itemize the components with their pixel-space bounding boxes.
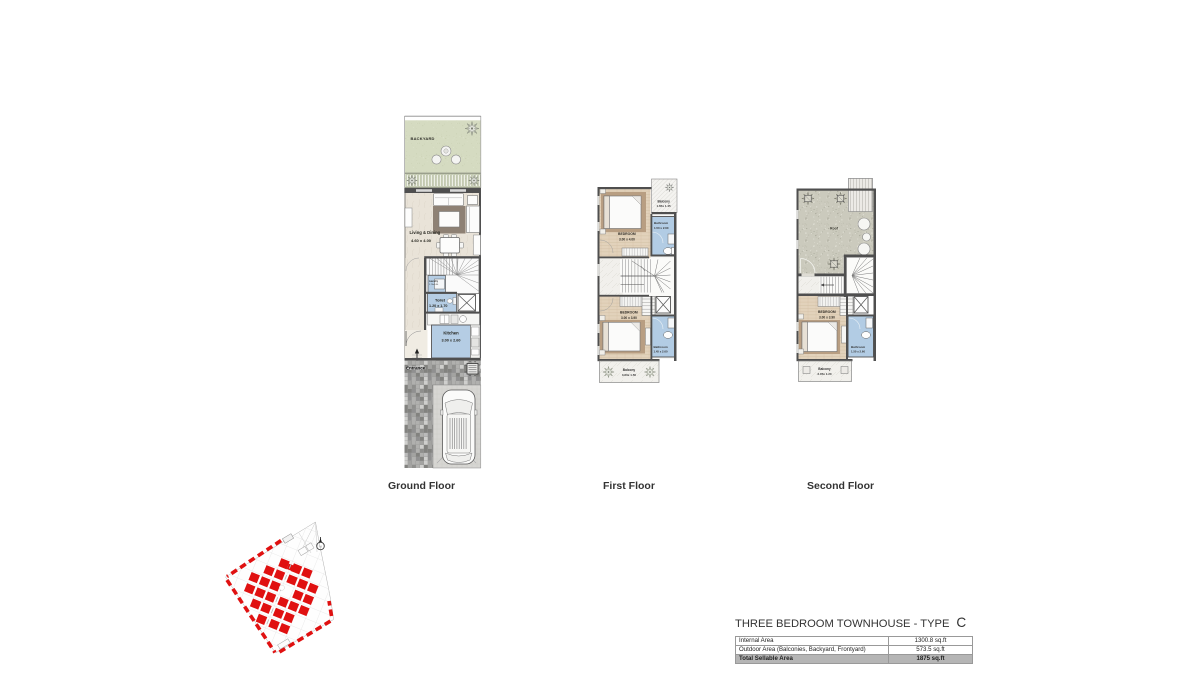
svg-text:3.05x 1.20: 3.05x 1.20 xyxy=(817,372,832,376)
svg-text:BEDROOM: BEDROOM xyxy=(618,232,636,236)
svg-text:BEDROOM: BEDROOM xyxy=(818,310,836,314)
svg-text:1.70x0.90: 1.70x0.90 xyxy=(429,284,439,286)
svg-text:Kitchen: Kitchen xyxy=(443,331,459,336)
svg-text:3.00 x 2.60: 3.00 x 2.60 xyxy=(441,339,460,343)
svg-text:Bathroom: Bathroom xyxy=(851,345,865,349)
svg-text:1.45 x 2.60: 1.45 x 2.60 xyxy=(654,350,668,354)
svg-text:1.50 x 2.60: 1.50 x 2.60 xyxy=(654,226,669,230)
svg-text:1.50 x 2.60: 1.50 x 2.60 xyxy=(851,350,865,354)
svg-text:Laundry: Laundry xyxy=(429,281,439,283)
svg-text:Balcony: Balcony xyxy=(623,368,636,372)
svg-text:Balcony: Balcony xyxy=(658,200,671,204)
svg-text:Toilet: Toilet xyxy=(435,298,446,303)
svg-text:4.60 x 4.00: 4.60 x 4.00 xyxy=(411,238,432,243)
svg-text:3.00 x 3.90: 3.00 x 3.90 xyxy=(621,316,637,320)
svg-text:Roof: Roof xyxy=(830,227,839,231)
svg-text:Living & Dining: Living & Dining xyxy=(410,230,441,235)
svg-text:BEDROOM: BEDROOM xyxy=(620,311,638,315)
svg-text:BACKYARD: BACKYARD xyxy=(411,136,435,141)
svg-text:Balcony: Balcony xyxy=(818,367,831,371)
svg-text:3.00 x 3.90: 3.00 x 3.90 xyxy=(819,316,835,320)
svg-text:Entrance: Entrance xyxy=(406,366,426,371)
svg-text:N: N xyxy=(319,544,321,548)
svg-text:Bathroom: Bathroom xyxy=(654,221,668,225)
svg-text:1.65x 1.45: 1.65x 1.45 xyxy=(657,204,672,208)
svg-text:3.00 x 4.00: 3.00 x 4.00 xyxy=(619,238,635,242)
svg-text:1.20 x 1.70: 1.20 x 1.70 xyxy=(429,304,447,308)
svg-text:3.60x 1.50: 3.60x 1.50 xyxy=(622,373,637,377)
svg-text:Bathroom: Bathroom xyxy=(654,345,668,349)
